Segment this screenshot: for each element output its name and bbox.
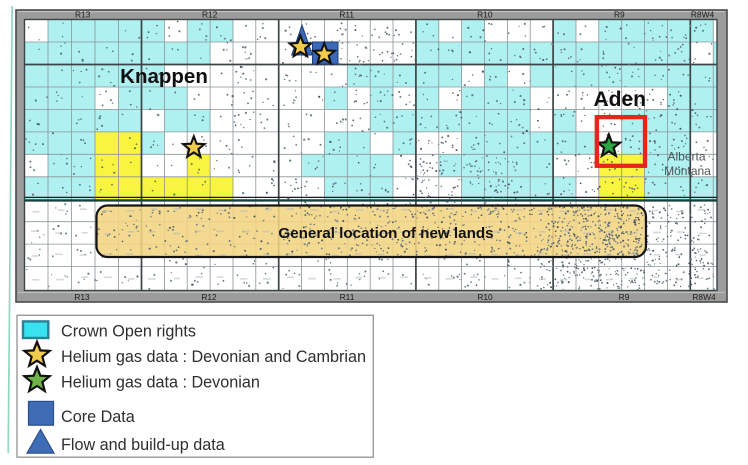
svg-text:Montana: Montana [664,164,711,178]
svg-text:R10: R10 [477,10,493,20]
svg-text:R8W4: R8W4 [692,292,716,302]
svg-text:Flow and build-up data: Flow and build-up data [61,436,225,454]
svg-text:Helium gas data : Devonian and: Helium gas data : Devonian and Cambrian [61,348,366,366]
svg-text:Core Data: Core Data [61,408,135,426]
svg-text:Alberta: Alberta [667,150,705,164]
svg-text:R12: R12 [201,292,217,302]
svg-text:Knappen: Knappen [120,65,208,88]
svg-text:Crown Open rights: Crown Open rights [61,323,196,341]
svg-text:R9: R9 [619,292,630,302]
svg-text:Helium gas data : Devonian: Helium gas data : Devonian [61,373,260,391]
svg-text:R13: R13 [75,10,91,20]
svg-text:R9: R9 [614,10,625,20]
svg-text:R8W4: R8W4 [691,10,715,20]
svg-text:R13: R13 [74,292,90,302]
svg-text:General location of new lands: General location of new lands [278,225,493,242]
svg-text:R12: R12 [202,10,218,20]
svg-text:R11: R11 [340,292,355,302]
svg-text:R11: R11 [339,10,354,20]
svg-text:Aden: Aden [593,88,646,111]
svg-text:R10: R10 [477,292,493,302]
